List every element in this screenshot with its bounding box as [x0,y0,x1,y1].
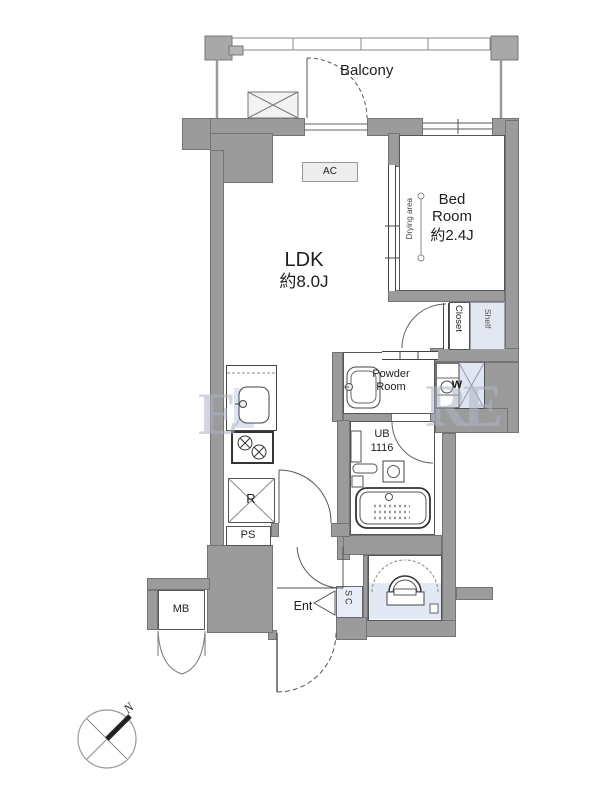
closet-label: Closet [452,305,463,332]
kitchen-counter [226,365,277,431]
ldk-size-label: 約8.0J [279,272,328,292]
bedroom-size-label: 約2.4J [430,227,473,244]
equipment-box-icon [248,92,298,118]
bath-label: UB [374,428,389,441]
north-label: N [120,698,138,717]
wall [332,352,343,422]
wall [331,523,350,537]
ac-label: AC [323,166,337,178]
closet-door-arc [402,304,446,348]
wall [147,578,210,590]
wall-mass [207,545,273,633]
sliding-partition [388,165,396,291]
wall [363,620,456,637]
meter-box-label: MB [173,603,190,616]
bath-size-label: 1116 [371,442,394,455]
wall [435,408,508,433]
balcony-door-opening [305,120,367,135]
wall [388,290,505,302]
shoe-closet-label: SC [343,590,353,607]
wall [182,118,213,150]
drying-area-label: Drying area [405,198,414,239]
powder-room-label: Powder Room [360,368,422,393]
bedroom-label: Bed Room [419,191,485,226]
wall-right [505,120,519,362]
wall [147,590,158,630]
closet-door [443,303,449,349]
shoe-closet-triangle [314,591,335,615]
wall [271,523,279,537]
shelf-label: Shelf [482,309,492,328]
wall [442,433,456,635]
entrance-door-arc [277,633,336,692]
stove-box [231,431,274,464]
floor-plan-canvas: N Balcony AC LDK 約8.0J Bed Room 約2.4J Dr… [0,0,600,800]
compass-icon: N [78,698,138,768]
bedroom-window [423,120,492,135]
fridge-label: R [246,492,255,507]
toilet-area [368,555,442,621]
powder-sliding-door [382,351,438,360]
wall [430,348,519,362]
railing-post-right [491,36,518,60]
washer-label: W [452,379,462,392]
wall [343,535,442,555]
balcony-label: Balcony [340,62,393,79]
railing-post-left [205,36,232,60]
wall-left [210,150,224,560]
wall [336,617,367,640]
ldk-door-arc [279,470,331,523]
pipe-space-label: PS [241,529,256,542]
ldk-label: LDK [285,249,324,272]
meter-box-doors [158,631,205,674]
bath-area [350,421,435,535]
wall [456,587,493,600]
entrance-label: Ent [294,599,313,613]
